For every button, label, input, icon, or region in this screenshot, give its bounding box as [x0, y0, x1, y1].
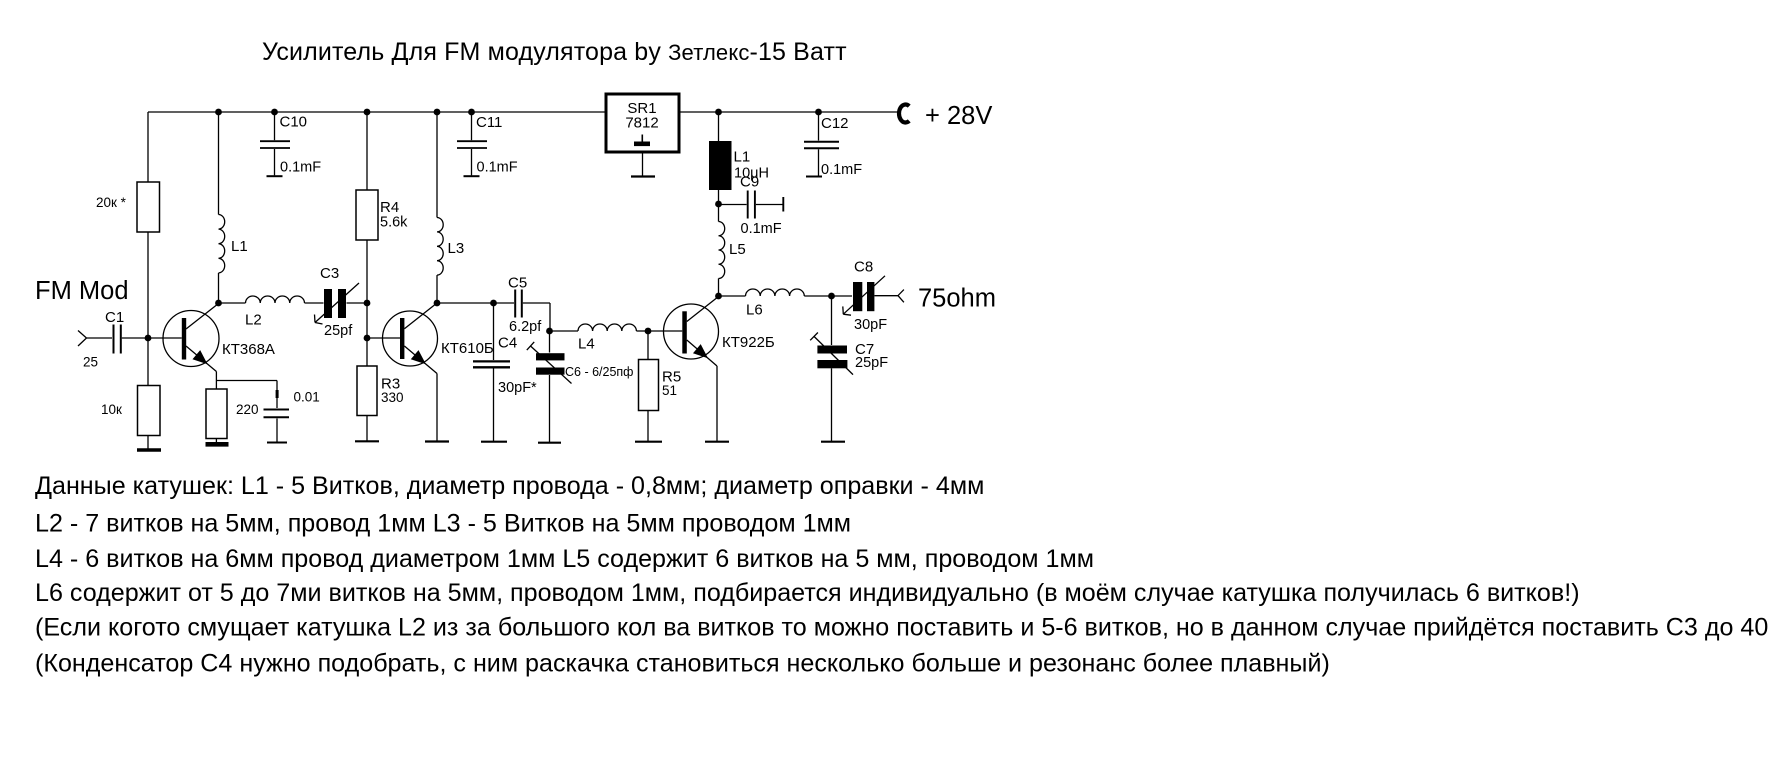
- svg-text:7812: 7812: [625, 115, 658, 132]
- svg-text:330: 330: [381, 390, 404, 405]
- svg-text:L1: L1: [231, 238, 248, 255]
- svg-text:L2: L2: [245, 312, 262, 329]
- svg-text:КТ922Б: КТ922Б: [722, 334, 775, 351]
- svg-text:25pF: 25pF: [855, 355, 888, 371]
- svg-text:L2 - 7 витков на 5мм, провод 1: L2 - 7 витков на 5мм, провод 1мм L3 - 5 …: [35, 510, 851, 538]
- svg-text:0.01: 0.01: [294, 390, 320, 405]
- svg-text:C11: C11: [476, 114, 502, 131]
- svg-text:20к *: 20к *: [96, 195, 127, 210]
- svg-text:C4: C4: [498, 335, 517, 352]
- svg-text:C3: C3: [320, 265, 339, 282]
- svg-text:0.1mF: 0.1mF: [477, 160, 518, 176]
- svg-text:L6 содержит от 5 до 7ми витков: L6 содержит от 5 до 7ми витков на 5мм, п…: [35, 579, 1580, 607]
- svg-text:L4 - 6 витков на 6мм провод ди: L4 - 6 витков на 6мм провод диаметром 1м…: [35, 545, 1094, 573]
- svg-text:КТ368А: КТ368А: [222, 341, 275, 358]
- svg-text:C1: C1: [105, 309, 124, 326]
- svg-text:L4: L4: [578, 336, 595, 353]
- svg-text:R4: R4: [380, 199, 399, 216]
- svg-text:10к: 10к: [101, 402, 122, 417]
- svg-text:Данные катушек: L1 - 5 Витков,: Данные катушек: L1 - 5 Витков, диаметр п…: [35, 472, 984, 500]
- svg-text:КТ610Б: КТ610Б: [441, 340, 494, 357]
- svg-text:C9: C9: [740, 174, 759, 191]
- svg-text:С6 - 6/25пф: С6 - 6/25пф: [565, 365, 633, 379]
- svg-text:0.1mF: 0.1mF: [741, 221, 782, 237]
- svg-text:30pF*: 30pF*: [498, 380, 537, 396]
- svg-text:(Если когото смущает катушка L: (Если когото смущает катушка L2 из за бо…: [35, 614, 1768, 642]
- svg-text:C8: C8: [854, 259, 873, 276]
- svg-text:0.1mF: 0.1mF: [280, 160, 321, 176]
- svg-text:+ 28V: + 28V: [925, 102, 992, 130]
- svg-text:5.6k: 5.6k: [380, 215, 408, 231]
- svg-text:L3: L3: [448, 240, 465, 257]
- svg-text:C10: C10: [280, 114, 308, 131]
- svg-text:25pf: 25pf: [324, 323, 353, 339]
- svg-text:220: 220: [236, 402, 259, 417]
- svg-text:L5: L5: [729, 241, 746, 258]
- svg-text:51: 51: [662, 383, 677, 398]
- svg-text:75ohm: 75ohm: [918, 285, 996, 313]
- svg-text:(Конденсатор С4 нужно подобрат: (Конденсатор С4 нужно подобрать, с ним р…: [35, 650, 1330, 678]
- svg-text:L6: L6: [746, 302, 763, 319]
- svg-text:L1: L1: [734, 149, 751, 166]
- svg-text:C12: C12: [821, 115, 849, 132]
- svg-text:0.1mF: 0.1mF: [821, 162, 862, 178]
- svg-text:FM Mod: FM Mod: [35, 277, 129, 305]
- svg-text:30pF: 30pF: [854, 317, 887, 333]
- svg-text:C5: C5: [508, 275, 527, 292]
- svg-text:25: 25: [83, 355, 98, 370]
- svg-text:Усилитель Для FM модулятора by: Усилитель Для FM модулятора by Зетлекс-1…: [262, 38, 847, 66]
- svg-text:6.2pf: 6.2pf: [509, 319, 542, 335]
